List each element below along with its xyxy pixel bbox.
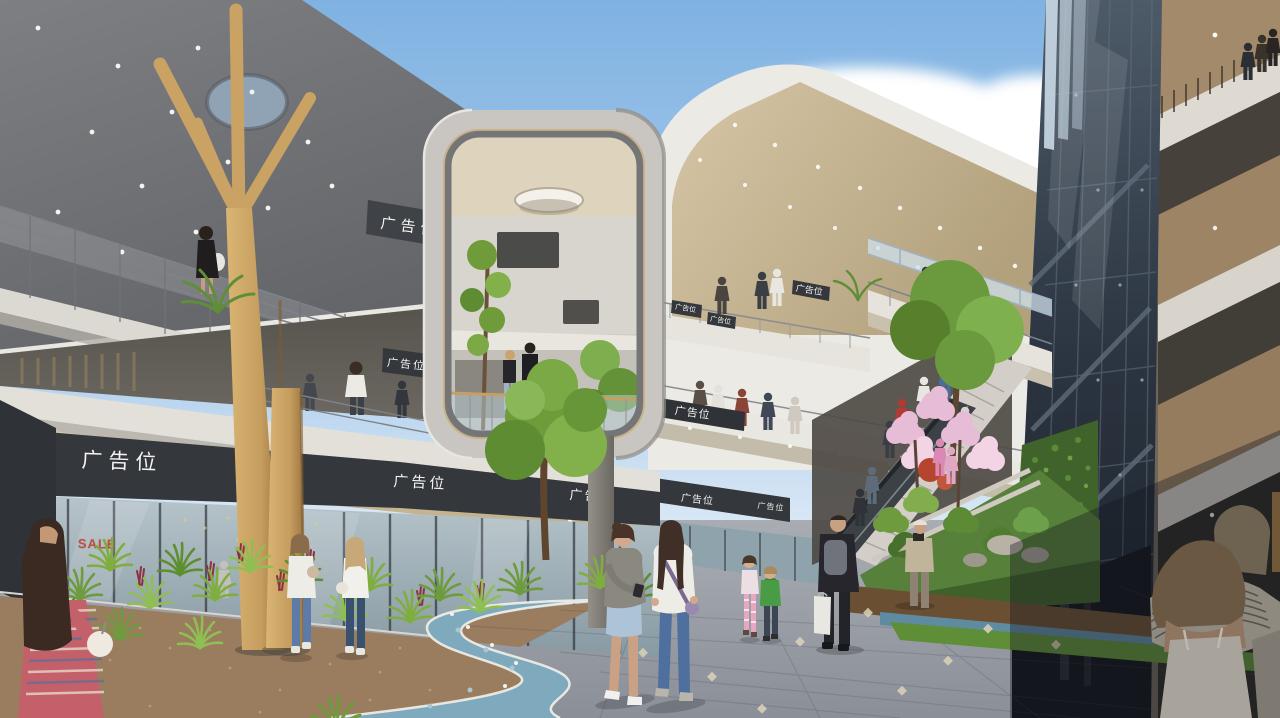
child-girl xyxy=(740,555,760,643)
person-man-backpack xyxy=(814,515,864,655)
coconut-drink xyxy=(87,631,113,657)
child-boy xyxy=(760,566,781,644)
person-sunglasses-woman xyxy=(645,520,706,716)
foreground-layer xyxy=(0,0,1280,718)
couple-in-shadow xyxy=(1150,505,1280,718)
mall-courtyard-rendering: 广告位 广告位 广告位 广告位 广告位 广告位 广告位 广告位 广告位 广告位 … xyxy=(0,0,1280,718)
shopping-bag xyxy=(814,596,831,635)
